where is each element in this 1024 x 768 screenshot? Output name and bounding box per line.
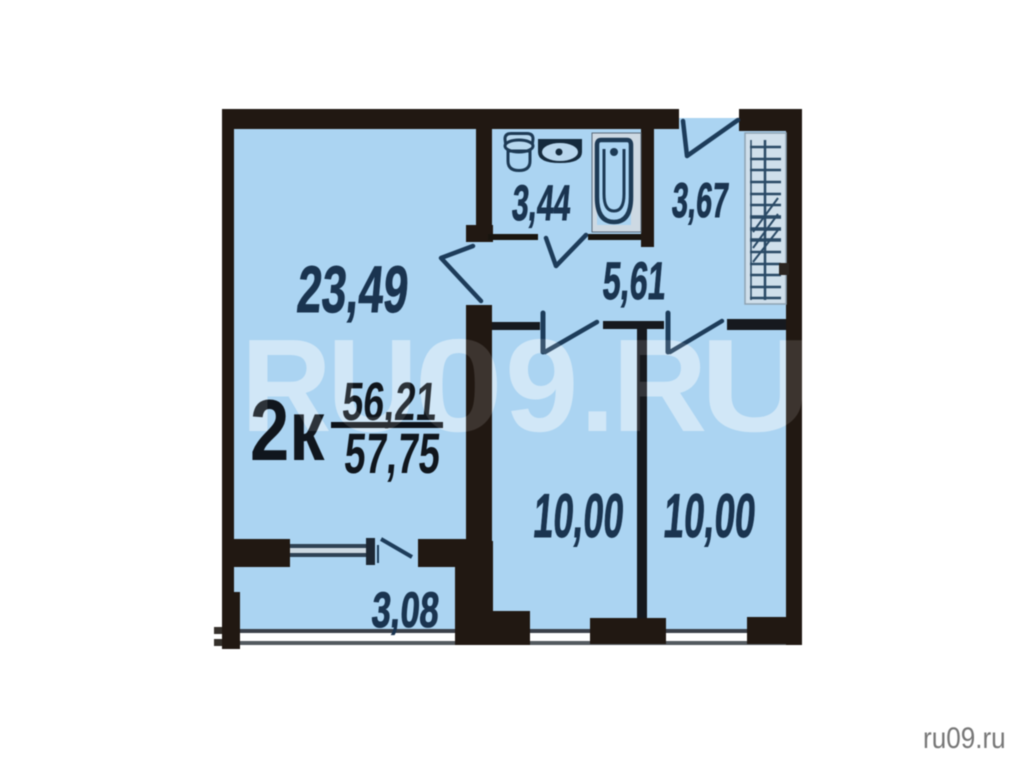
svg-text:RU: RU	[241, 312, 414, 460]
svg-text:10,00: 10,00	[531, 481, 627, 551]
svg-text:.: .	[580, 312, 615, 460]
svg-text:ru09.ru: ru09.ru	[923, 721, 1006, 754]
svg-text:5,61: 5,61	[600, 252, 668, 311]
svg-text:U: U	[700, 312, 812, 459]
svg-text:3,08: 3,08	[369, 583, 441, 639]
svg-text:3,67: 3,67	[670, 172, 731, 228]
svg-text:0: 0	[414, 313, 504, 460]
svg-text:10,00: 10,00	[661, 481, 759, 550]
svg-text:R: R	[612, 312, 707, 459]
svg-text:3,44: 3,44	[510, 175, 573, 231]
svg-text:9: 9	[505, 312, 578, 459]
